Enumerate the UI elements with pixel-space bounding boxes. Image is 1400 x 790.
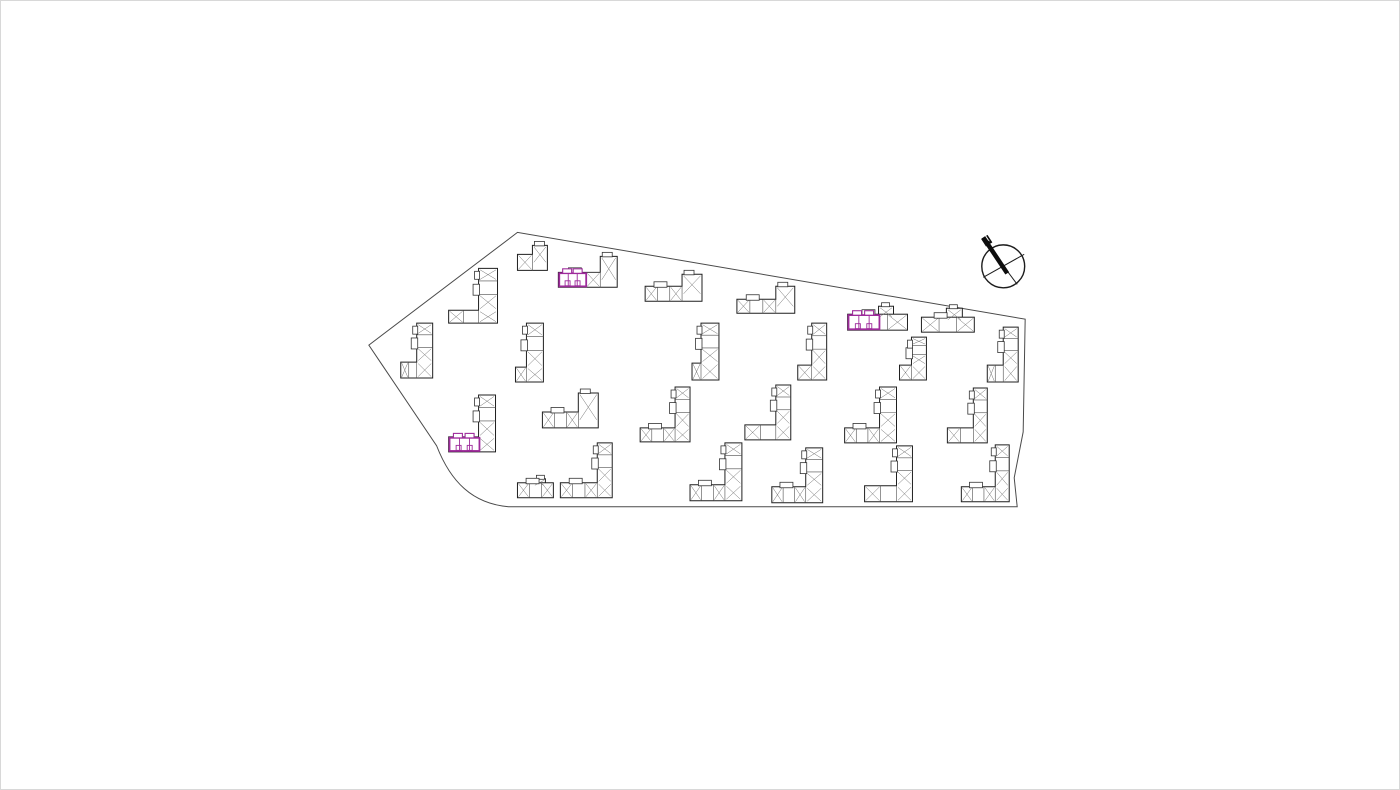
building-b16[interactable] bbox=[640, 387, 690, 442]
building-outline bbox=[865, 446, 913, 502]
building-b03[interactable] bbox=[645, 270, 702, 301]
building-outline bbox=[737, 286, 795, 313]
building-outline bbox=[560, 443, 612, 498]
building-outline bbox=[961, 445, 1009, 502]
building-b18[interactable] bbox=[845, 387, 897, 443]
master-plan-svg: N bbox=[1, 1, 1399, 789]
building-outline bbox=[515, 323, 543, 382]
building-outline bbox=[899, 337, 926, 380]
building-b09[interactable] bbox=[515, 323, 543, 382]
building-b12[interactable] bbox=[899, 337, 926, 380]
building-b19[interactable] bbox=[947, 388, 987, 443]
building-b22[interactable] bbox=[690, 443, 742, 501]
building-b23[interactable] bbox=[772, 448, 823, 503]
building-outline bbox=[640, 387, 690, 442]
compass-rose: N bbox=[979, 232, 1025, 288]
highlighted-unit[interactable] bbox=[450, 433, 480, 451]
building-outline bbox=[772, 448, 823, 503]
building-b17[interactable] bbox=[745, 385, 791, 440]
building-b01[interactable] bbox=[517, 241, 547, 270]
site-plan-canvas: N bbox=[0, 0, 1400, 790]
building-b21[interactable] bbox=[560, 443, 612, 498]
building-b04[interactable] bbox=[737, 282, 795, 313]
building-b20[interactable] bbox=[517, 475, 553, 497]
building-b15[interactable] bbox=[542, 389, 598, 428]
building-b24[interactable] bbox=[865, 446, 913, 502]
building-b14[interactable] bbox=[449, 395, 496, 452]
buildings-layer bbox=[401, 241, 1018, 502]
building-outline bbox=[645, 274, 702, 301]
building-b08[interactable] bbox=[449, 268, 498, 323]
highlighted-unit[interactable] bbox=[559, 269, 586, 287]
building-outline bbox=[449, 268, 498, 323]
building-b11[interactable] bbox=[798, 323, 827, 380]
building-b10[interactable] bbox=[692, 323, 719, 380]
building-b05[interactable] bbox=[848, 303, 908, 330]
building-b02[interactable] bbox=[558, 252, 617, 287]
building-b13[interactable] bbox=[987, 327, 1018, 382]
building-b07[interactable] bbox=[401, 323, 433, 378]
building-b25[interactable] bbox=[961, 445, 1009, 502]
